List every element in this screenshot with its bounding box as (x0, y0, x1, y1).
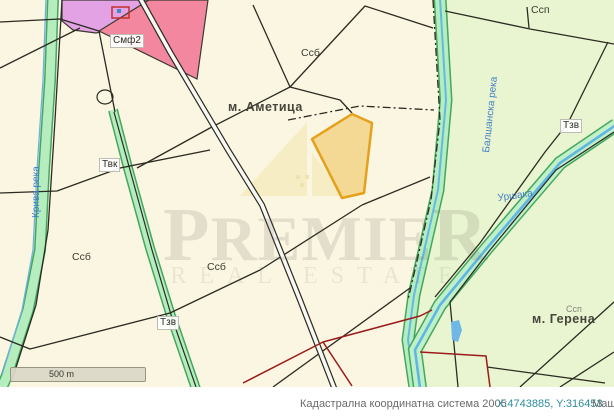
map-label: м. Герена (532, 312, 595, 326)
map-label: Крива река (31, 166, 42, 218)
map-label: Ссб (301, 47, 320, 59)
scale-label-truncated: Мащ (592, 398, 614, 410)
status-bar: Кадастрална координатна система 2005 X:4… (0, 387, 614, 416)
map-label: Твк (99, 158, 120, 172)
cadastre-app-window: PREMIER REAL ESTATE Смф2Ссбм. АметицаТвк… (0, 0, 614, 416)
cursor-coordinates: X:4743885, Y:316453 (497, 398, 603, 410)
map-label: Тзв (157, 316, 179, 330)
scale-bar: 500 m (10, 367, 146, 382)
map-label: Ссб (72, 251, 91, 263)
map-label: Ссб (207, 261, 226, 273)
map-label: Тзв (560, 119, 582, 133)
coordinate-system-label: Кадастрална координатна система 2005 (300, 398, 507, 410)
map-label: Смф2 (110, 34, 144, 48)
blue-marker-dot (117, 9, 121, 13)
map-viewport[interactable]: PREMIER REAL ESTATE Смф2Ссбм. АметицаТвк… (0, 0, 614, 387)
map-label: м. Аметица (228, 100, 303, 114)
scale-bar-label: 500 m (49, 369, 74, 379)
map-label: Ссп (531, 4, 550, 16)
